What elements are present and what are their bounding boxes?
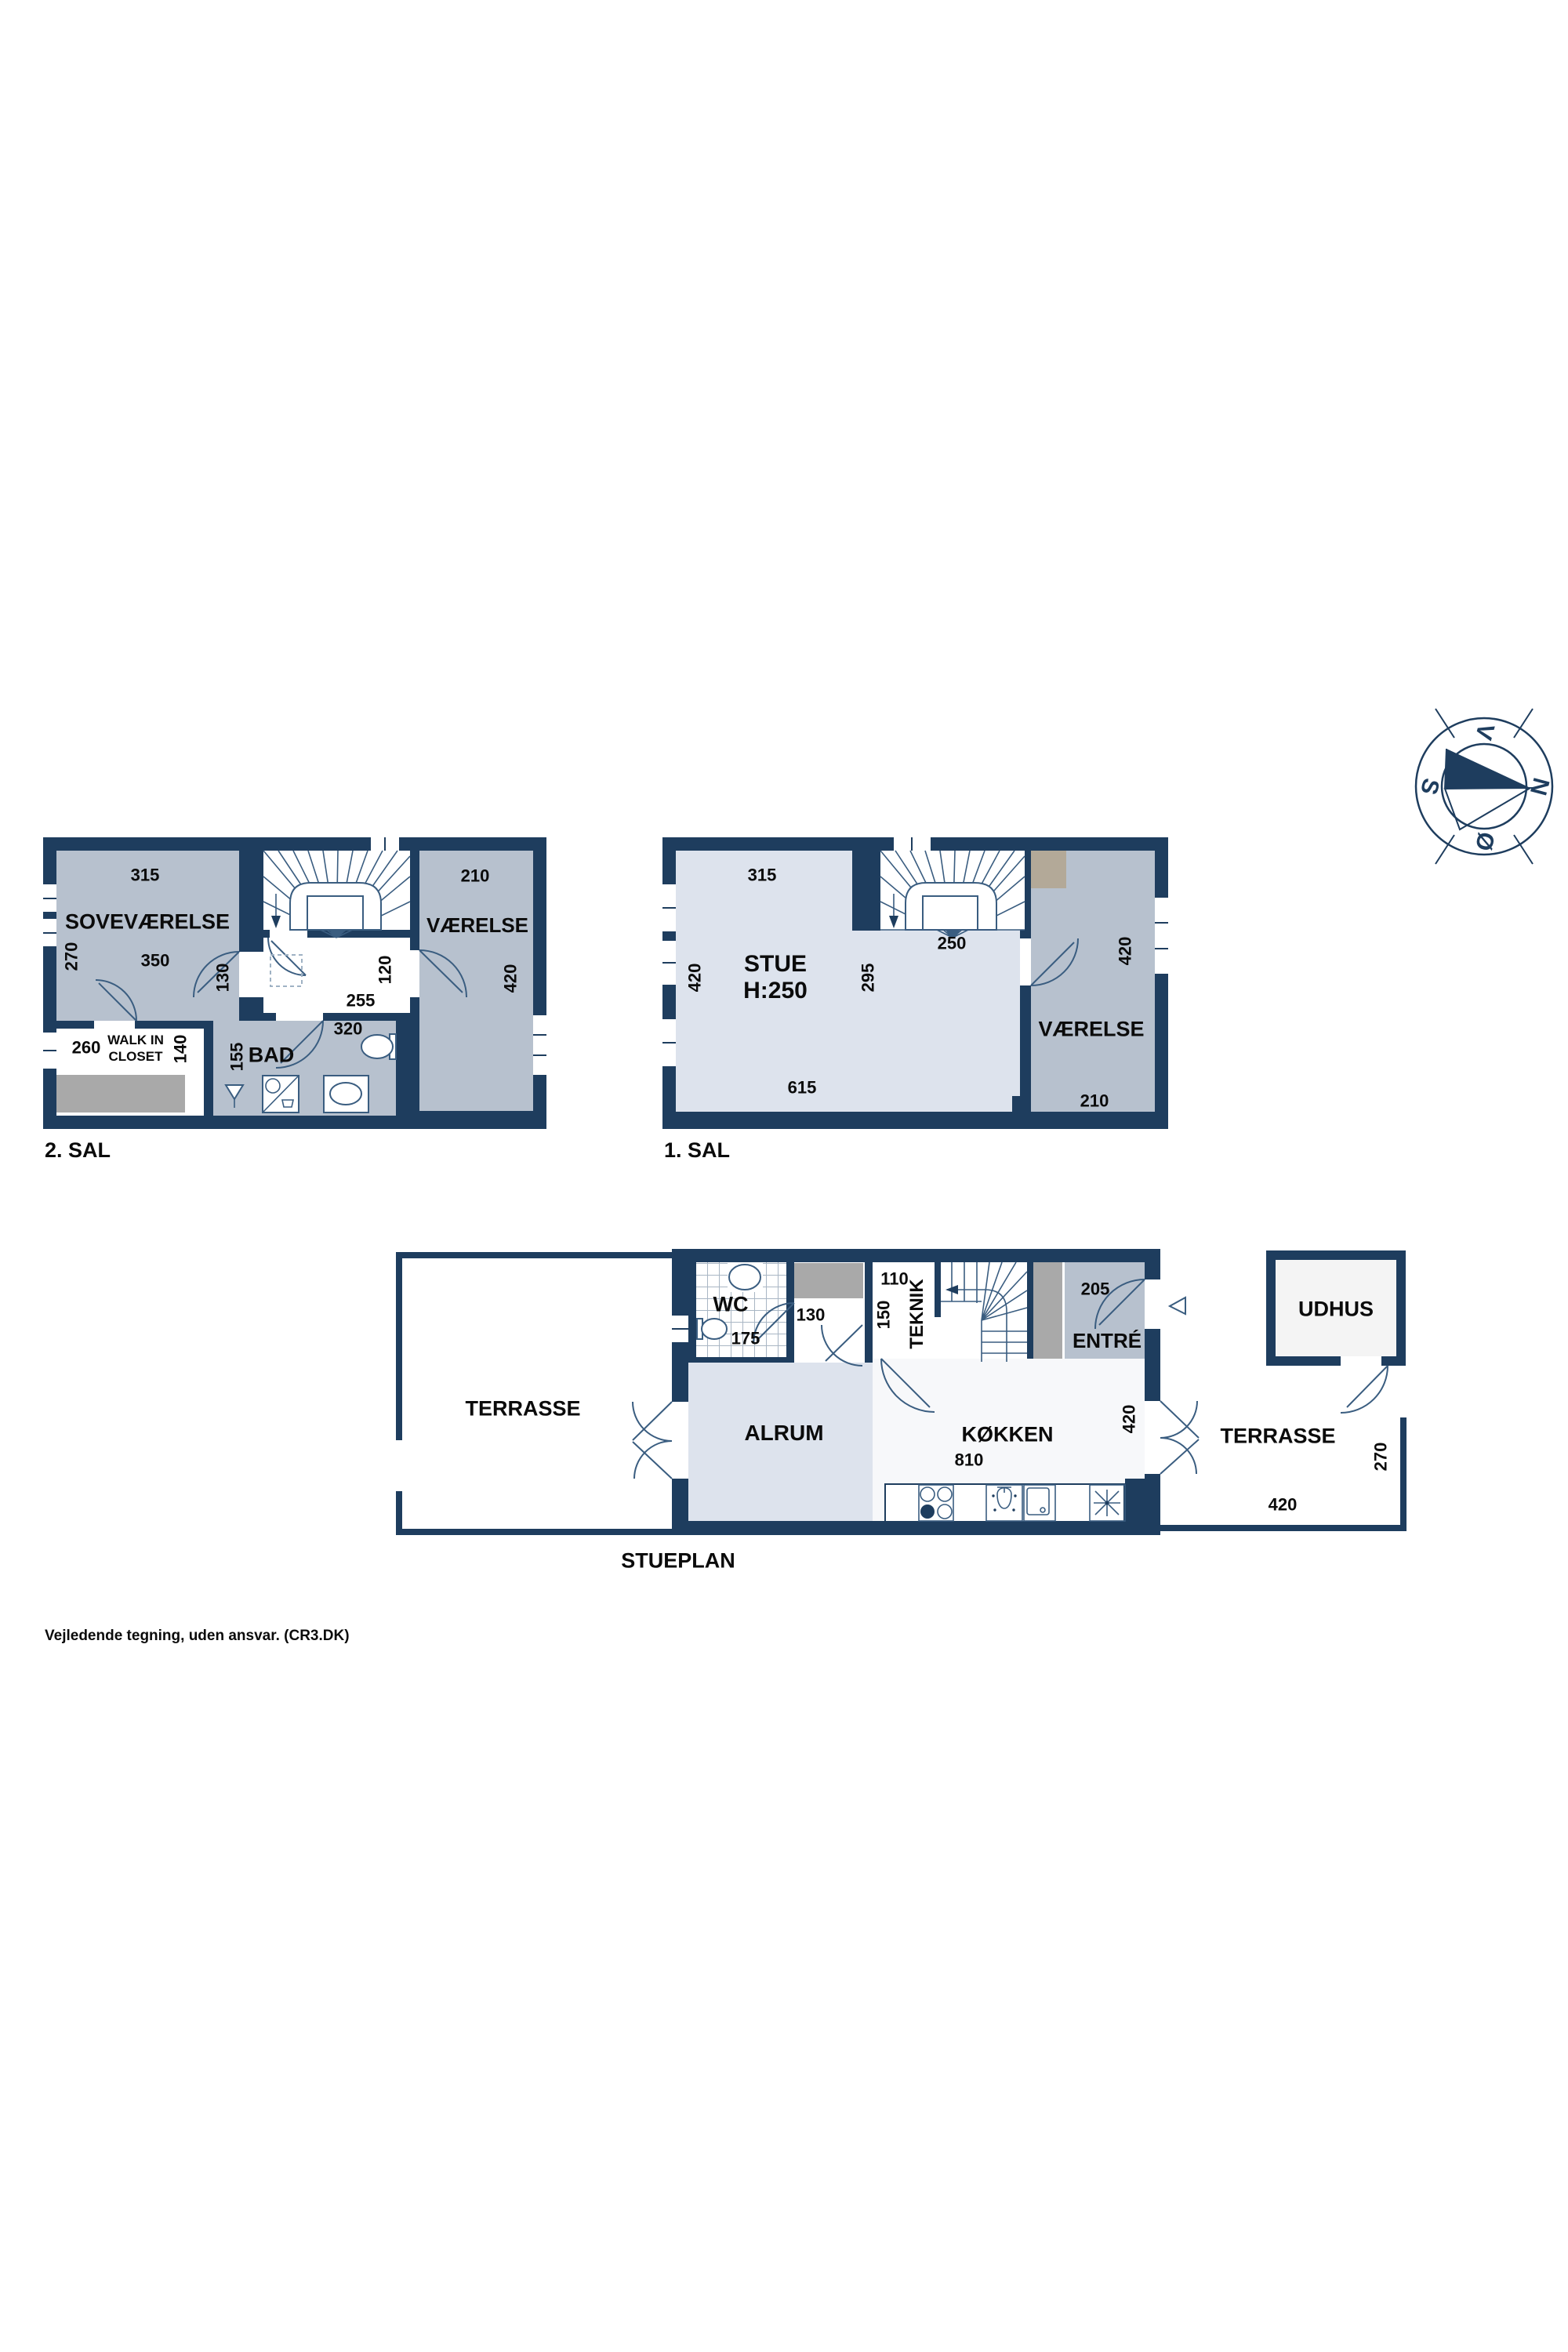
stueplan-stair-shaft — [941, 1262, 1027, 1362]
floor-label-stueplan: STUEPLAN — [621, 1548, 735, 1573]
dim-terrasse-270: 270 — [1370, 1443, 1390, 1472]
wardrobe — [56, 1075, 185, 1112]
window-sal1-right — [1155, 898, 1168, 974]
room-label-walkin-2: CLOSET — [109, 1049, 163, 1065]
sal1-wall-notch — [1012, 1096, 1031, 1112]
dim-sal2-120: 120 — [375, 956, 394, 985]
door-opening-stair-landing — [270, 930, 307, 938]
entry-closet — [1033, 1262, 1062, 1362]
terrace-left-rail-top — [396, 1252, 679, 1258]
sal1-stair-shaft — [880, 851, 1025, 930]
dim-entre-205: 205 — [1081, 1279, 1110, 1298]
window-sal1-top — [894, 837, 931, 851]
window-sal2-left-1 — [43, 884, 56, 912]
window-house-left — [672, 1316, 688, 1342]
sal2-stair-shaft — [263, 851, 410, 930]
door-opening-entrance — [1145, 1279, 1160, 1329]
door-opening-french-left — [672, 1402, 688, 1479]
floor-label-sal1: 1. SAL — [664, 1138, 730, 1163]
dim-sal1-210: 210 — [1080, 1091, 1109, 1110]
doormat — [794, 1263, 863, 1298]
door-opening-sove-landing — [239, 952, 263, 997]
dim-closet-260: 260 — [72, 1037, 101, 1057]
terrace-left-rail-left-upper — [396, 1252, 402, 1440]
window-sal2-left-2 — [43, 919, 56, 946]
terrace-right-rail-right — [1400, 1417, 1406, 1531]
dim-sal1-295: 295 — [858, 964, 877, 993]
door-opening-teknik — [935, 1317, 941, 1359]
room-label-vaerelse-sal1: VÆRELSE — [1038, 1017, 1144, 1041]
dim-bad-320: 320 — [334, 1018, 363, 1038]
door-opening-landing-vaerelse — [410, 950, 419, 997]
room-vaerelse-sal1 — [1031, 851, 1155, 1112]
window-sal1-left-3 — [662, 1019, 676, 1066]
dim-sal1-615: 615 — [788, 1077, 817, 1097]
dim-sal1-250: 250 — [938, 933, 967, 953]
terrace-left-rail-bottom — [396, 1529, 694, 1535]
room-label-wc: WC — [713, 1292, 749, 1316]
room-label-sovevaerelse: SOVEVÆRELSE — [65, 909, 230, 934]
dim-sal1-420-right: 420 — [1115, 937, 1134, 966]
wc-sink-niche — [728, 1262, 763, 1292]
room-label-terrasse-left: TERRASSE — [465, 1396, 580, 1421]
terrace-right-rail-bottom — [1160, 1525, 1406, 1531]
compass-letter-n: N — [1524, 775, 1554, 798]
disclaimer-text: Vejledende tegning, uden ansvar. (CR3.DK… — [45, 1628, 350, 1645]
sal1-interior-wall — [852, 851, 880, 931]
door-opening-french-right — [1145, 1401, 1160, 1474]
door-opening-sove-closet — [94, 1021, 135, 1029]
room-label-terrasse-right: TERRASSE — [1220, 1424, 1335, 1448]
dim-sal2-315: 315 — [131, 865, 160, 884]
dim-teknik-110: 110 — [880, 1269, 909, 1288]
room-label-alrum: ALRUM — [744, 1421, 823, 1446]
window-sal1-left-2 — [662, 941, 676, 985]
dim-sal2-270: 270 — [61, 942, 81, 971]
dim-wc-175: 175 — [731, 1328, 760, 1348]
door-opening-stue-vaerelse — [1020, 938, 1031, 985]
dim-stue-height: H:250 — [743, 978, 808, 1005]
dim-sal2-210: 210 — [461, 866, 490, 885]
kitchen-counter — [884, 1483, 1125, 1523]
window-sal2-closet — [43, 1033, 56, 1069]
dim-sal1-315: 315 — [748, 865, 777, 884]
dim-hall-130: 130 — [797, 1305, 826, 1324]
compass-letter-o: Ø — [1469, 829, 1500, 853]
floorplan-linework — [0, 0, 1568, 2352]
window-sal2-right — [533, 1015, 546, 1075]
room-label-entre: ENTRÉ — [1073, 1330, 1142, 1353]
dim-teknik-150: 150 — [873, 1301, 893, 1330]
window-sal1-left-1 — [662, 884, 676, 931]
dim-kokken-810: 810 — [955, 1450, 984, 1469]
room-label-udhus: UDHUS — [1298, 1297, 1374, 1321]
floorplan-page: V N S Ø 315 SOVEVÆRELSE 350 270 130 255 … — [0, 0, 1568, 2352]
dim-terrasse-420: 420 — [1269, 1494, 1298, 1514]
dim-sal2-420: 420 — [500, 964, 520, 993]
room-label-kokken: KØKKEN — [961, 1422, 1053, 1446]
room-label-teknik: TEKNIK — [906, 1279, 928, 1348]
compass-needle — [1445, 749, 1530, 789]
dim-kokken-420: 420 — [1119, 1405, 1138, 1434]
door-opening-landing-bad — [276, 1013, 323, 1021]
window-sal2-top — [371, 837, 399, 851]
dim-closet-140: 140 — [170, 1035, 190, 1064]
dim-bad-155: 155 — [227, 1043, 246, 1072]
dim-sal2-350: 350 — [141, 950, 170, 970]
dim-sal2-255: 255 — [347, 990, 376, 1010]
door-opening-udhus — [1341, 1356, 1381, 1366]
chimney — [1031, 851, 1066, 888]
house-corner-block — [1125, 1479, 1145, 1521]
compass-letter-s: S — [1414, 775, 1444, 797]
room-label-vaerelse-sal2: VÆRELSE — [426, 914, 528, 938]
dim-sal1-420-left: 420 — [684, 964, 704, 993]
compass-letter-v: V — [1469, 720, 1499, 742]
room-label-stue: STUE — [744, 951, 807, 978]
entrance-arrow-icon — [1170, 1298, 1185, 1314]
room-label-bad: BAD — [249, 1043, 295, 1067]
floor-label-sal2: 2. SAL — [45, 1138, 111, 1163]
room-label-walkin-1: WALK IN — [107, 1033, 164, 1048]
dim-sal2-130: 130 — [212, 964, 232, 993]
